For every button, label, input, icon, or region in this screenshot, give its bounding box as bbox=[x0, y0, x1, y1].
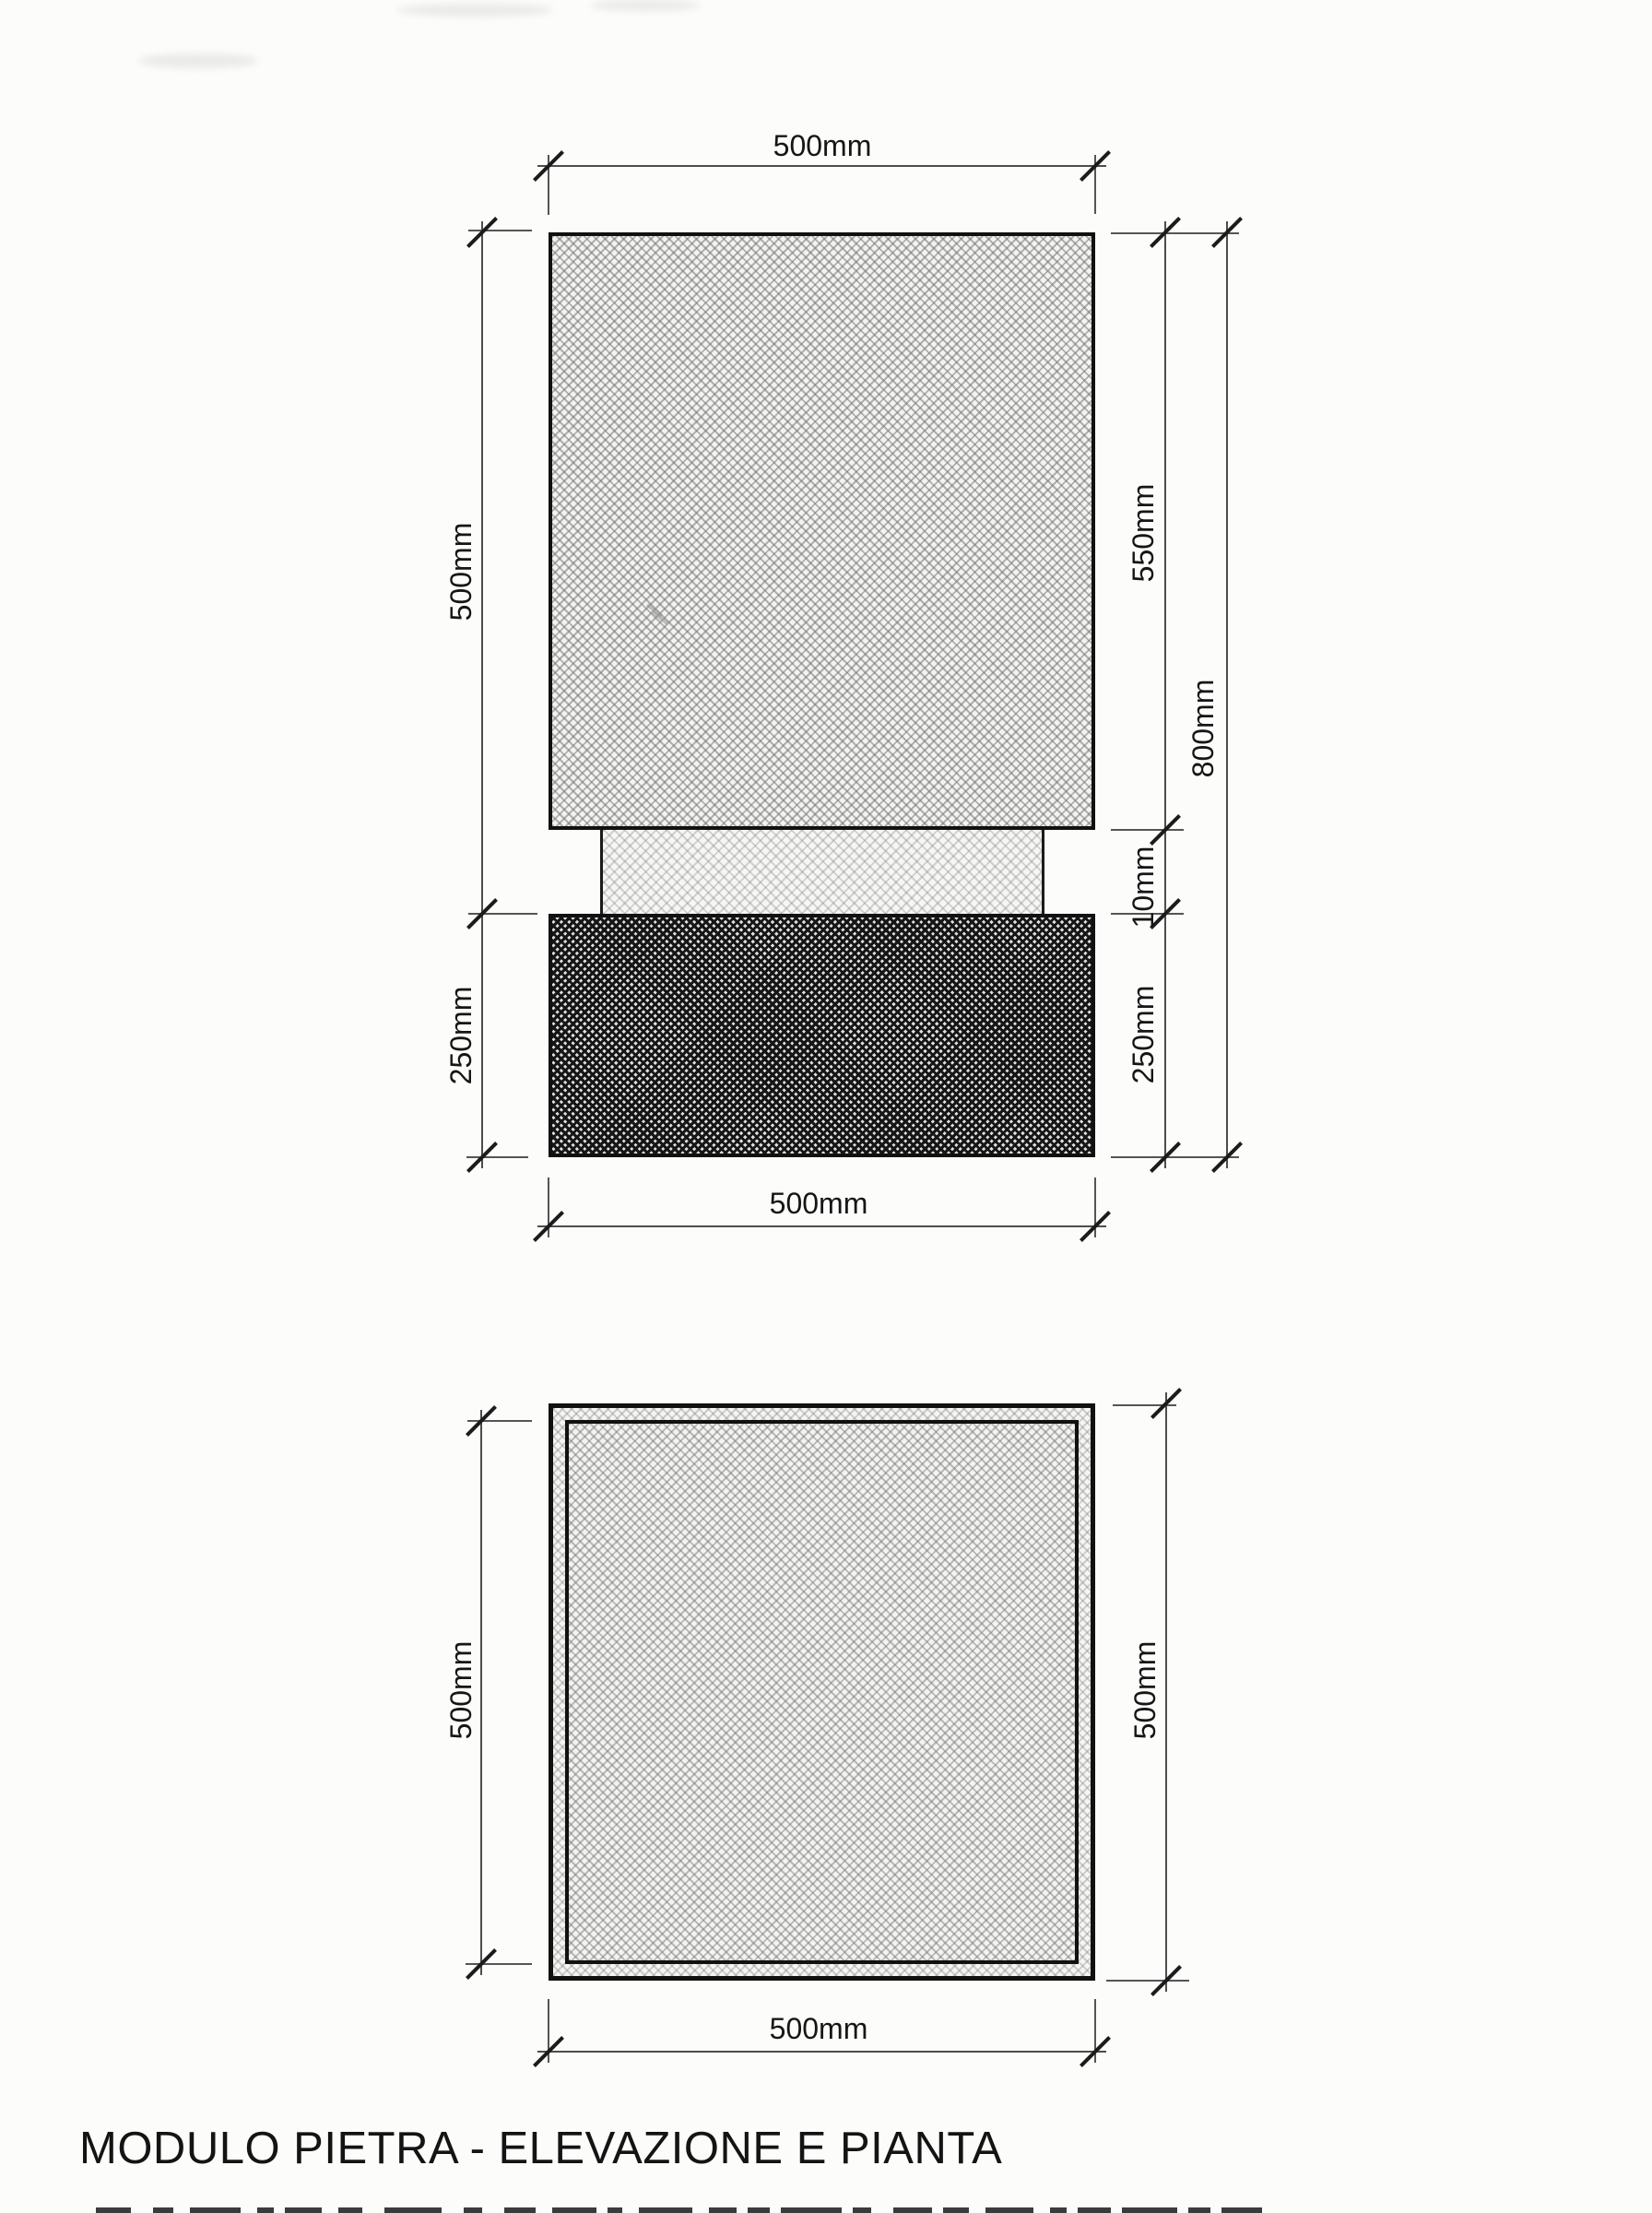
cutoff-text-fragment bbox=[781, 2207, 842, 2213]
extension-line bbox=[1106, 1980, 1189, 1982]
elevation-mortar-joint bbox=[600, 827, 1044, 917]
dim-line-elev-bottom bbox=[537, 1225, 1106, 1227]
cutoff-text-fragment bbox=[893, 2207, 932, 2213]
dim-label-left-upper: 500mm bbox=[446, 523, 476, 621]
dim-line-plan-left bbox=[480, 1410, 482, 1975]
cutoff-text-fragment bbox=[338, 2207, 362, 2213]
extension-line bbox=[1111, 232, 1239, 234]
dim-line-top bbox=[537, 165, 1106, 167]
cutoff-text-fragment bbox=[1050, 2207, 1067, 2213]
cutoff-text-fragment bbox=[384, 2207, 442, 2213]
cutoff-text-fragment bbox=[985, 2207, 1033, 2213]
cutoff-text-fragment bbox=[608, 2207, 622, 2213]
paper-smudge bbox=[396, 4, 553, 17]
extension-line bbox=[468, 230, 532, 231]
cutoff-text-fragment bbox=[464, 2207, 482, 2213]
dim-label-right-upper: 550mm bbox=[1128, 484, 1158, 583]
cutoff-text-fragment bbox=[853, 2207, 871, 2213]
cutoff-text-fragment bbox=[748, 2207, 770, 2213]
cutoff-text-fragment bbox=[1188, 2207, 1210, 2213]
cutoff-text-fragment bbox=[190, 2207, 241, 2213]
dim-line-left bbox=[481, 221, 483, 1168]
extension-line bbox=[466, 1963, 532, 1965]
dim-label-left-base: 250mm bbox=[446, 987, 476, 1085]
dim-line-plan-bottom bbox=[537, 2051, 1106, 2053]
paper-smudge bbox=[590, 0, 701, 11]
plan-inner-face bbox=[565, 1420, 1079, 1964]
dim-label-right-total: 800mm bbox=[1188, 680, 1218, 778]
dim-line-plan-right bbox=[1165, 1392, 1167, 1992]
extension-line bbox=[466, 1156, 528, 1158]
cutoff-text-fragment bbox=[285, 2207, 322, 2213]
cutoff-text-fragment bbox=[1078, 2207, 1111, 2213]
drawing-title: MODULO PIETRA - ELEVAZIONE E PIANTA bbox=[79, 2126, 1002, 2172]
cutoff-text-fragment bbox=[257, 2207, 274, 2213]
dim-line-right-outer bbox=[1226, 221, 1228, 1168]
cutoff-text-fragment bbox=[1122, 2207, 1177, 2213]
dim-line-right-inner bbox=[1164, 221, 1166, 1168]
dim-label-plan-right: 500mm bbox=[1130, 1641, 1160, 1740]
paper-smudge bbox=[138, 53, 258, 68]
drawing-sheet: 500mm 500mm 250mm 550mm 10mm 250mm 800mm… bbox=[0, 0, 1652, 2213]
cutoff-text-fragment bbox=[153, 2207, 173, 2213]
dim-label-plan-bottom: 500mm bbox=[770, 2014, 868, 2043]
dim-label-right-joint: 10mm bbox=[1128, 846, 1158, 929]
cutoff-text-fragment bbox=[96, 2207, 131, 2213]
dim-label-top: 500mm bbox=[773, 131, 872, 160]
dim-label-elev-bottom: 500mm bbox=[770, 1189, 868, 1218]
cutoff-text-fragment bbox=[552, 2207, 596, 2213]
elevation-upper-block bbox=[549, 232, 1095, 830]
cutoff-text-fragment bbox=[943, 2207, 969, 2213]
extension-line bbox=[1111, 829, 1184, 831]
elevation-base-block bbox=[549, 914, 1095, 1157]
cutoff-text-fragment bbox=[639, 2207, 692, 2213]
cutoff-text-fragment bbox=[504, 2207, 536, 2213]
cutoff-text-fragment bbox=[709, 2207, 737, 2213]
dim-label-plan-left: 500mm bbox=[446, 1641, 476, 1740]
cutoff-text-fragment bbox=[1221, 2207, 1262, 2213]
dim-label-right-base: 250mm bbox=[1128, 986, 1158, 1084]
extension-line bbox=[1111, 1156, 1239, 1158]
